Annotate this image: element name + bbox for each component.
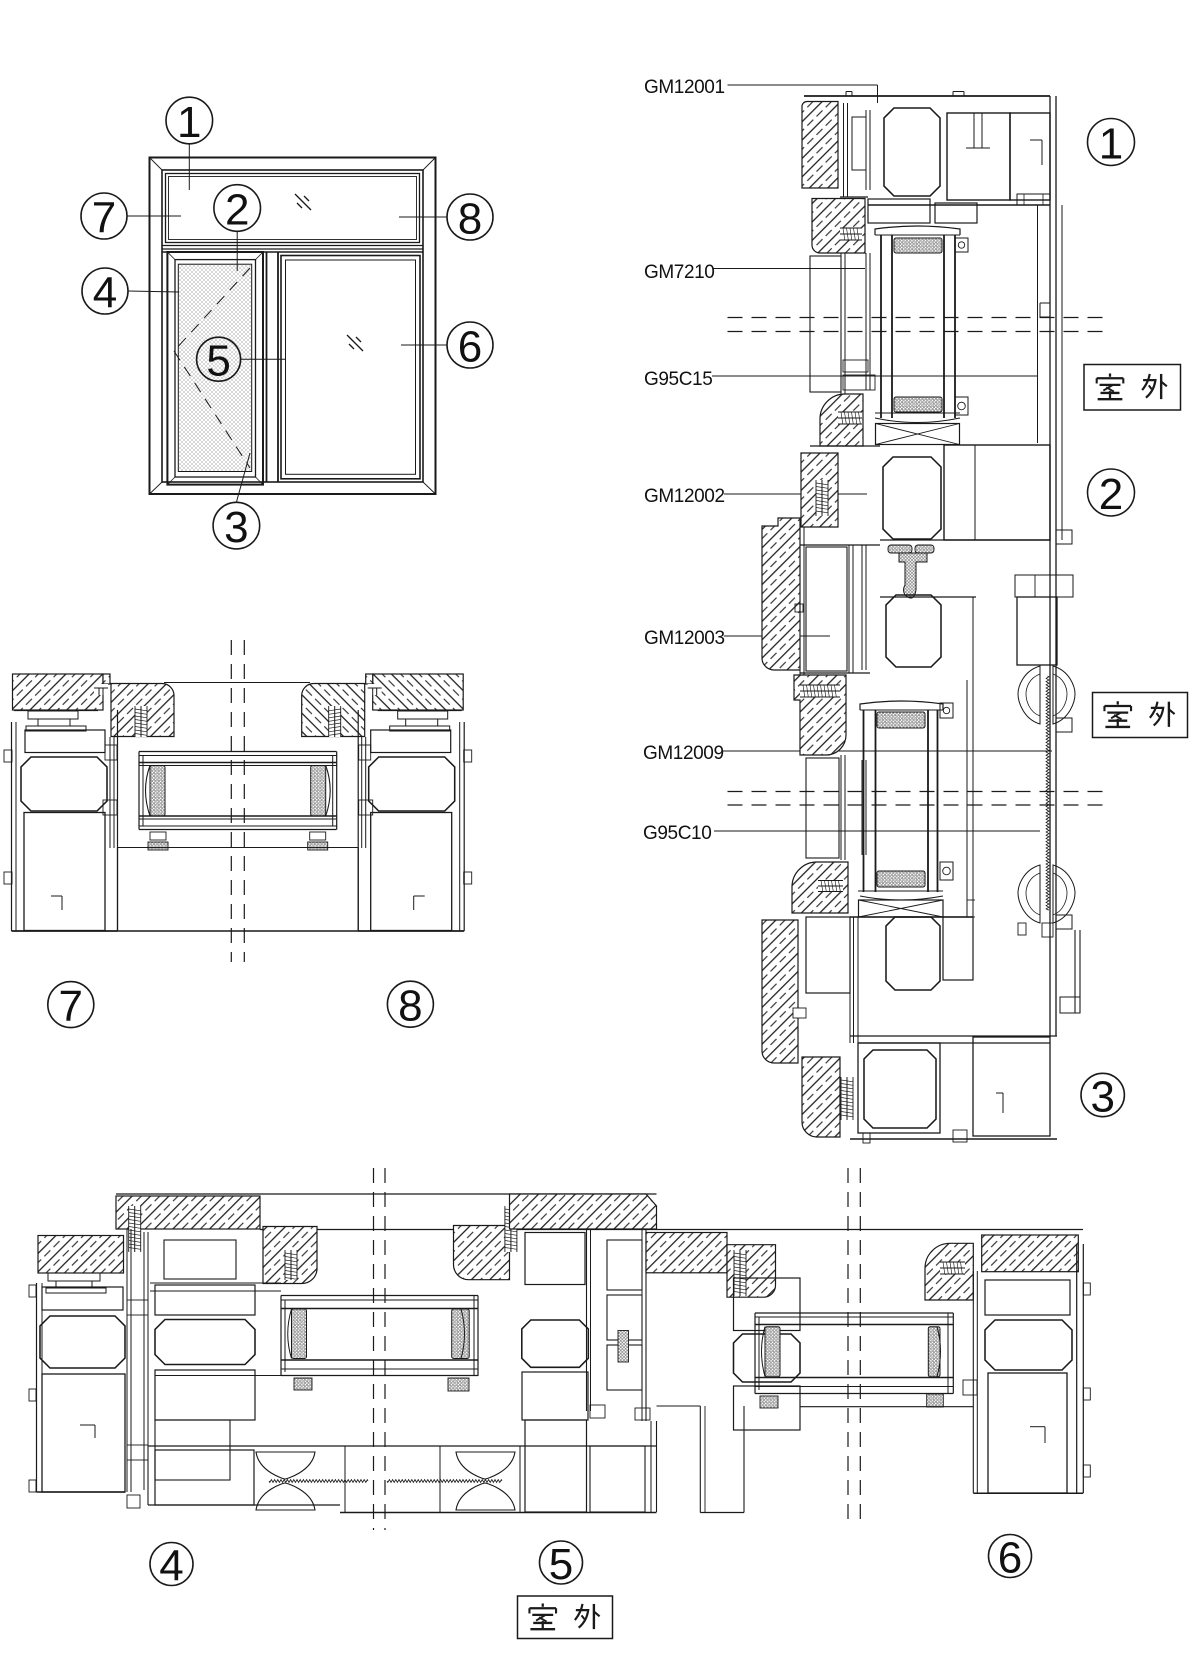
svg-text:GM12003: GM12003 [644,628,725,649]
svg-text:8: 8 [458,195,482,244]
svg-text:4: 4 [93,269,117,318]
svg-text:GM7210: GM7210 [644,262,714,283]
svg-text:G95C10: G95C10 [643,823,711,844]
svg-text:5: 5 [206,337,230,386]
svg-text:5: 5 [549,1540,573,1589]
svg-text:1: 1 [177,98,201,147]
svg-text:2: 2 [225,186,249,235]
svg-text:6: 6 [998,1534,1022,1583]
svg-text:1: 1 [1099,120,1123,169]
svg-text:3: 3 [224,503,248,552]
svg-text:7: 7 [92,194,116,243]
svg-text:GM12009: GM12009 [643,743,724,764]
svg-text:GM12002: GM12002 [644,486,725,507]
svg-text:4: 4 [159,1542,183,1591]
svg-text:G95C15: G95C15 [644,369,712,390]
svg-text:8: 8 [398,982,422,1031]
svg-text:7: 7 [59,982,83,1031]
svg-text:3: 3 [1090,1073,1114,1122]
svg-text:GM12001: GM12001 [644,77,725,98]
svg-text:2: 2 [1099,470,1123,519]
svg-text:6: 6 [458,323,482,372]
